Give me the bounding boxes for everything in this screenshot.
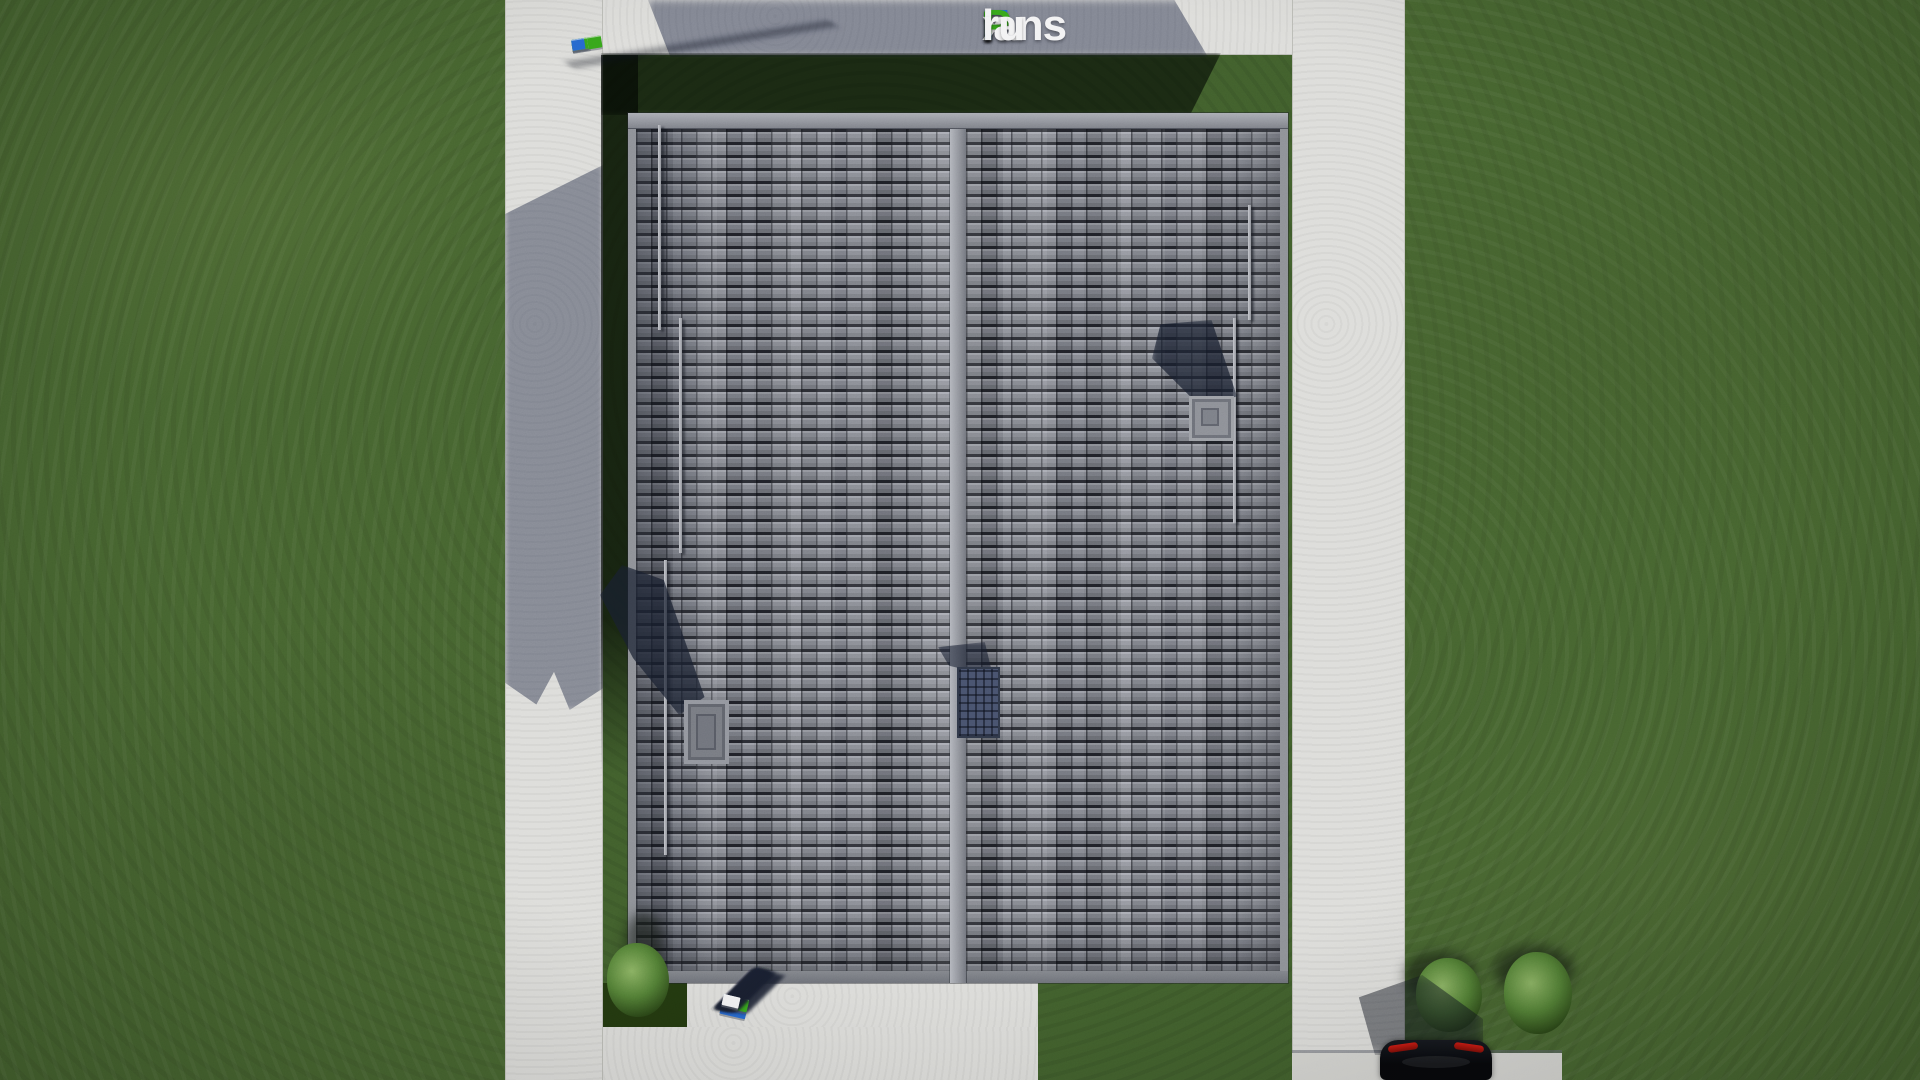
- aerial-house-render: F ı x P lans . ru: [0, 0, 1920, 1080]
- lightning-rod-segment: [1248, 205, 1251, 320]
- roof-center-ridge: [950, 129, 966, 983]
- car-rear-window: [1402, 1056, 1470, 1068]
- watermark-letters: ru: [982, 4, 1024, 48]
- roof-hatch: [957, 667, 1000, 738]
- house-shadow-on-left-walkway: [505, 165, 603, 710]
- taillight-icon: [1388, 1042, 1419, 1053]
- walkway-right: [1292, 0, 1405, 1080]
- house-shadow-on-yard: [601, 53, 1221, 115]
- chimney-flue: [1201, 408, 1219, 426]
- lightning-rod-segment: [658, 125, 661, 330]
- lightning-rod-segment: [679, 318, 682, 553]
- house-roof: [628, 113, 1288, 983]
- roof-left-section: [636, 129, 950, 971]
- taillight-icon: [1454, 1042, 1485, 1053]
- garden-bush: [607, 943, 669, 1017]
- roof-ridge-cap-top: [628, 113, 1288, 129]
- chimney: [1189, 396, 1234, 441]
- roof-right-section: [966, 129, 1280, 971]
- logo-3d-block-face: [571, 38, 586, 51]
- bush: [1504, 952, 1572, 1034]
- chimney-flue: [696, 714, 716, 750]
- car: [1380, 1040, 1492, 1080]
- chimney: [684, 700, 729, 764]
